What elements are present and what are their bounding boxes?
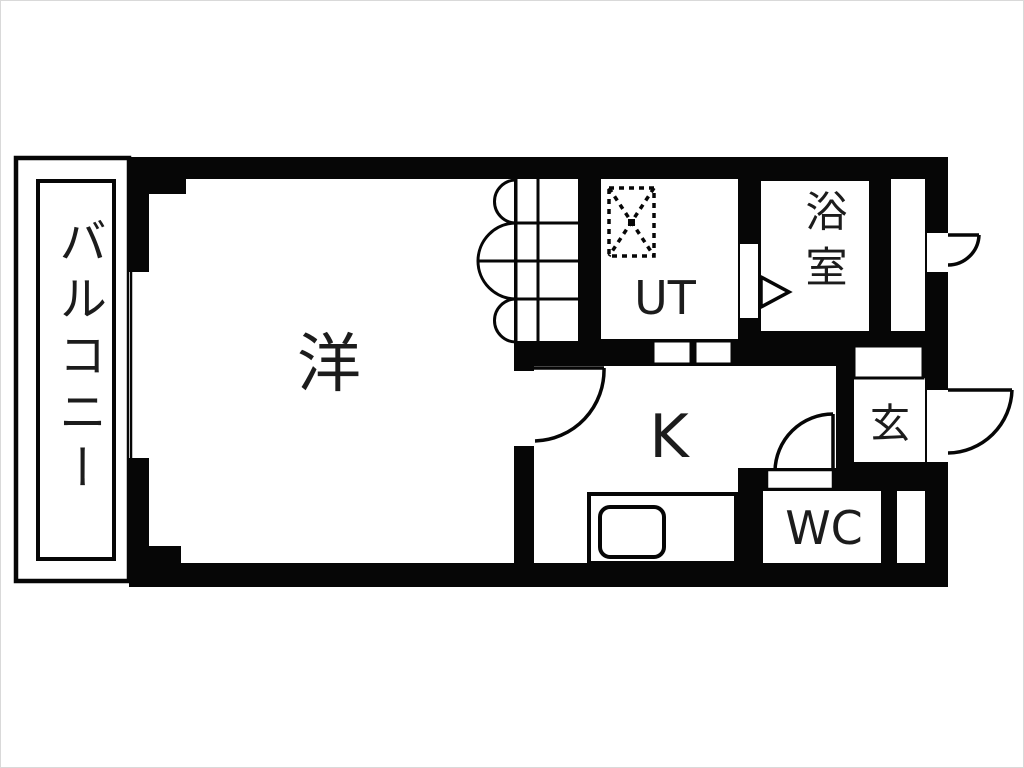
label-balcony: バルコニー [54,216,102,499]
pillar-top-left [149,179,186,194]
small-door-arc [948,235,979,265]
sink-icon [600,507,664,557]
pipe-space-floor [891,179,925,331]
toilet-side-space [897,491,925,563]
entrance-step [854,346,923,378]
label-utility: UT [634,275,696,321]
bathroom-doorway-gap [740,244,758,318]
utility-threshold-left [653,341,691,364]
toilet-threshold [767,470,833,489]
washer-pan-center-dot [628,219,635,226]
entrance-door-arc [948,390,1012,453]
entrance-door-gap [927,390,948,462]
kitchen-counter [589,494,736,563]
label-toilet: WC [785,505,863,551]
label-kitchen: K [649,407,688,467]
utility-threshold-right [695,341,732,364]
right-wall-small-door-gap [927,233,948,272]
label-bathroom: 浴室 [802,190,844,301]
room-kitchen-floor-right [738,366,836,468]
pillar-bottom-left [149,546,181,563]
label-entrance: 玄 [870,404,910,444]
floor-plan-canvas: バルコニー 洋 UT 浴室 K 玄 WC [0,0,1024,768]
label-western-room: 洋 [297,333,361,397]
floor-plan-drawing [1,1,1024,768]
kitchen-doorway-gap [514,371,534,446]
